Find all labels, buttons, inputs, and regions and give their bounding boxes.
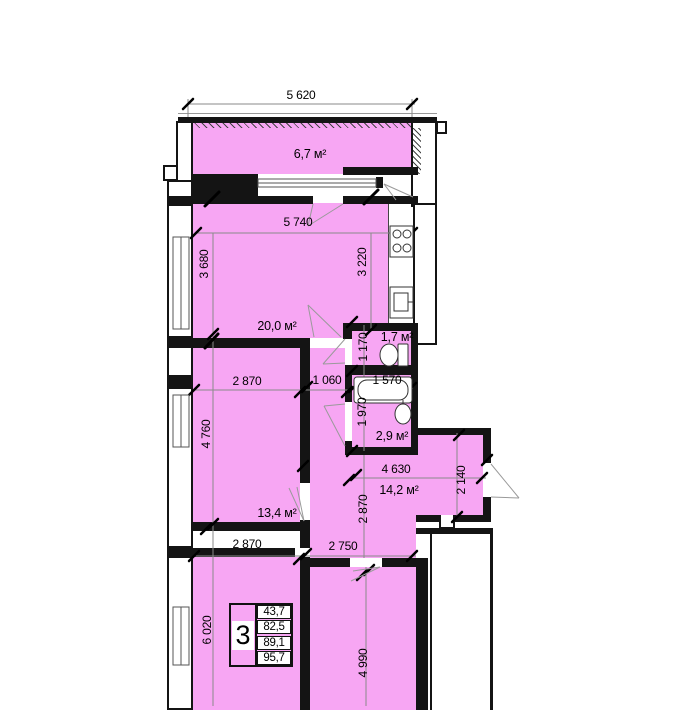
wall-hatch-top: [192, 123, 437, 128]
window-end-cap: [376, 177, 383, 188]
rooms-count-cell: 3: [231, 605, 257, 665]
wall-br-room-top-left: [310, 558, 350, 567]
wall-entry-right-upper: [483, 428, 491, 463]
dim-bottom-left-height: 6 020: [201, 615, 213, 644]
wall-midroom-bottom: [193, 522, 310, 531]
wall-br-room-right: [416, 558, 428, 710]
apartment-info-table: 3 43,7 82,5 89,1 95,7: [229, 603, 293, 667]
wall-balcony-left-notch: [163, 165, 178, 181]
room-bedroom-bottom-right: [310, 567, 416, 710]
wall-top-face-line: [178, 113, 437, 114]
dim-wc-height: 1 170: [357, 332, 369, 361]
wall-kitchen-top-right: [343, 196, 418, 204]
wall-bath-bottom: [345, 447, 418, 455]
area-value-row: 95,7: [257, 651, 291, 665]
wall-midroom-right: [300, 338, 310, 483]
wall-kitchen-top-left: [192, 196, 313, 204]
wall-balcony-left: [176, 121, 193, 185]
area-value-row: 82,5: [257, 620, 291, 634]
wall-rooms-divider: [300, 557, 310, 710]
dim-hall-entry-height: 2 140: [455, 465, 467, 494]
wall-entry-top: [416, 428, 490, 435]
room-hall-corridor: [310, 348, 345, 458]
wall-entry-notch: [439, 515, 455, 529]
area-value-row: 43,7: [257, 605, 291, 619]
wall-left-seg-4: [167, 546, 193, 558]
wall-kitchen-bottom: [193, 338, 310, 348]
kitchen-counter: [388, 203, 414, 323]
building-line-1: [430, 534, 432, 710]
dim-hall-width: 4 630: [381, 463, 410, 475]
wall-wc-corner: [343, 323, 352, 339]
dim-midroom-width: 2 870: [232, 375, 261, 387]
dim-bottom-left-width: 2 870: [232, 538, 261, 550]
dim-bath-width: 1 570: [372, 374, 401, 386]
dim-hall-height: 2 870: [357, 494, 369, 523]
room-hall-entry: [416, 435, 483, 515]
area-values-column: 43,7 82,5 89,1 95,7: [257, 605, 291, 665]
area-bathroom: 2,9 м²: [376, 430, 408, 443]
wall-left-seg-2: [167, 336, 193, 348]
area-balcony: 6,7 м²: [294, 148, 326, 161]
wall-balcony-band-right: [343, 167, 418, 175]
building-bar-bottom-right: [416, 528, 492, 534]
area-value-row: 89,1: [257, 636, 291, 650]
area-wc: 1,7 м²: [381, 331, 413, 344]
building-line-2: [490, 528, 493, 710]
room-kitchen-living: [193, 203, 343, 338]
dim-bath-height: 1 970: [356, 397, 368, 426]
dim-top-width: 5 620: [286, 89, 315, 101]
wall-balcony-pier: [192, 174, 258, 196]
dim-corridor-width: 1 060: [312, 374, 341, 386]
dim-living-width: 5 740: [283, 216, 312, 228]
dim-living-height-right: 3 220: [356, 247, 368, 276]
wall-left-exterior: [167, 180, 193, 710]
dim-midroom-height: 4 760: [200, 419, 212, 448]
wall-balcony-right-notch: [436, 121, 447, 134]
area-kitchen-living: 20,0 м²: [257, 320, 296, 333]
wall-bath-left-top: [345, 375, 352, 402]
dim-bottom-right-height: 4 990: [357, 648, 369, 677]
dim-living-height-left: 3 680: [198, 249, 210, 278]
area-bedroom-mid: 13,4 м²: [257, 507, 296, 520]
wall-left-seg-1: [167, 196, 193, 206]
dim-bottom-right-width: 2 750: [328, 540, 357, 552]
rooms-count-value: 3: [232, 621, 253, 650]
wall-left-seg-3: [167, 375, 193, 389]
wall-br-room-top-right: [382, 558, 418, 567]
area-hall: 14,2 м²: [379, 484, 418, 497]
floor-plan: 5 620 6,7 м² 5 740 3 680 3 220 20,0 м² 1…: [0, 0, 678, 710]
